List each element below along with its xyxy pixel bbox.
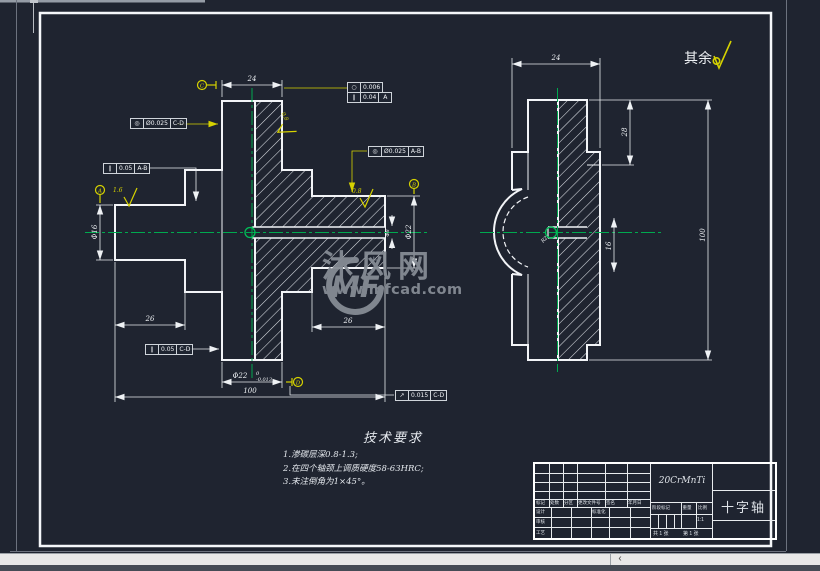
tolerance-frame-concentric-cd: ◎Ø0.025C-D	[130, 118, 187, 129]
tb-design-label: 设计	[536, 509, 545, 515]
svg-text:16: 16	[605, 241, 613, 250]
tech-req-item: 1.渗碳层深0.8-1.3;	[283, 449, 503, 463]
tb-rev-label: 年月日	[628, 500, 642, 506]
scroll-left-button[interactable]: ‹	[613, 553, 627, 565]
tb-rev-label: 分区	[564, 500, 573, 506]
svg-text:100: 100	[243, 387, 257, 395]
bottom-strip	[0, 565, 820, 571]
side-view	[480, 88, 662, 372]
technical-requirements: 技术要求 1.渗碳层深0.8-1.3; 2.在四个轴颈上调质硬度58-63HRC…	[283, 427, 503, 490]
svg-text:24: 24	[551, 54, 561, 62]
tb-stage-label: 阶段标记	[652, 505, 670, 511]
tb-rev-label: 签名	[606, 500, 615, 506]
others-finish-note: 其余	[684, 41, 731, 68]
tb-rev-label: 处数	[550, 500, 559, 506]
title-block: 标记 处数 分区 更改文件号 签名 年月日 设计 标准化 审核 工艺 20CrM…	[533, 462, 777, 540]
tb-rev-label: 更改文件号	[578, 500, 601, 506]
gdt-parallel-icon: ∥	[347, 92, 361, 103]
datum-c-symbol: C	[198, 81, 217, 90]
datum-b-symbol: B	[410, 180, 419, 195]
datum-d-symbol: D	[286, 378, 303, 387]
tb-rev-label: 标记	[536, 500, 545, 506]
tb-weight-label: 重量	[683, 505, 692, 511]
mfcad-logo: MF +	[318, 252, 390, 316]
others-label: 其余	[684, 50, 712, 67]
tb-material: 20CrMnTi	[653, 476, 711, 486]
svg-text:MF: MF	[331, 270, 380, 304]
svg-text:0.8: 0.8	[352, 188, 362, 195]
roughness-icon	[713, 41, 731, 68]
tolerance-frame-runout-cd: ↗0.015C-D	[395, 390, 447, 401]
tb-process-label: 工艺	[536, 530, 545, 536]
svg-text:+: +	[370, 252, 378, 267]
front-view	[85, 88, 430, 378]
svg-text:1.6: 1.6	[113, 187, 123, 194]
status-bar: ‹	[0, 553, 820, 565]
svg-text:26: 26	[343, 317, 353, 325]
tech-req-title: 技术要求	[283, 427, 503, 446]
tolerance-frame-parallel-a: ∥0.04A	[347, 92, 392, 103]
tb-part-name: 十字轴	[712, 497, 775, 516]
tech-req-item: 2.在四个轴颈上调质硬度58-63HRC;	[283, 463, 503, 477]
gdt-runout-icon: ↗	[395, 390, 409, 401]
datum-a-symbol: A	[96, 186, 105, 204]
tb-standard-label: 标准化	[592, 509, 606, 515]
svg-text:24: 24	[247, 75, 257, 83]
svg-text:-0.013: -0.013	[256, 377, 272, 383]
svg-text:B: B	[411, 183, 416, 189]
tolerance-frame-concentric-ab: ◎Ø0.025A-B	[368, 146, 424, 157]
svg-text:Φ8: Φ8	[385, 229, 391, 236]
svg-text:28: 28	[621, 127, 629, 137]
svg-text:A: A	[97, 189, 102, 195]
watermark: MF + 沐风网 www.mfcad.com	[318, 252, 463, 298]
roughness-icon: 1.6	[113, 187, 137, 206]
tech-req-item: 3.未注倒角为1×45°。	[283, 476, 503, 490]
svg-text:26: 26	[145, 315, 155, 323]
svg-text:D: D	[295, 381, 301, 387]
tb-scale-label: 比例	[698, 505, 707, 511]
gdt-concentricity-icon: ◎	[368, 146, 382, 157]
drawing-canvas[interactable]: 24 26 26 Φ22 0 -0.013 100 Φ16 Φ22 Φ8	[0, 0, 820, 553]
tb-check-label: 审核	[536, 519, 545, 525]
svg-text:100: 100	[699, 228, 707, 242]
svg-text:Φ22: Φ22	[233, 372, 248, 380]
gdt-concentricity-icon: ◎	[130, 118, 144, 129]
tb-sheet-total: 共 1 张	[653, 530, 669, 537]
tolerance-frame-parallel-ab: ∥0.05A-B	[103, 163, 150, 174]
gdt-parallel-icon: ∥	[145, 344, 159, 355]
tb-scale-value: 1:1	[697, 517, 704, 523]
tolerance-frame-parallel-cd: ∥0.05C-D	[145, 344, 193, 355]
svg-text:Φ16: Φ16	[91, 224, 99, 239]
tb-sheet-no: 第 1 张	[683, 530, 699, 537]
svg-text:Φ22: Φ22	[405, 224, 413, 239]
gdt-parallel-icon: ∥	[103, 163, 117, 174]
